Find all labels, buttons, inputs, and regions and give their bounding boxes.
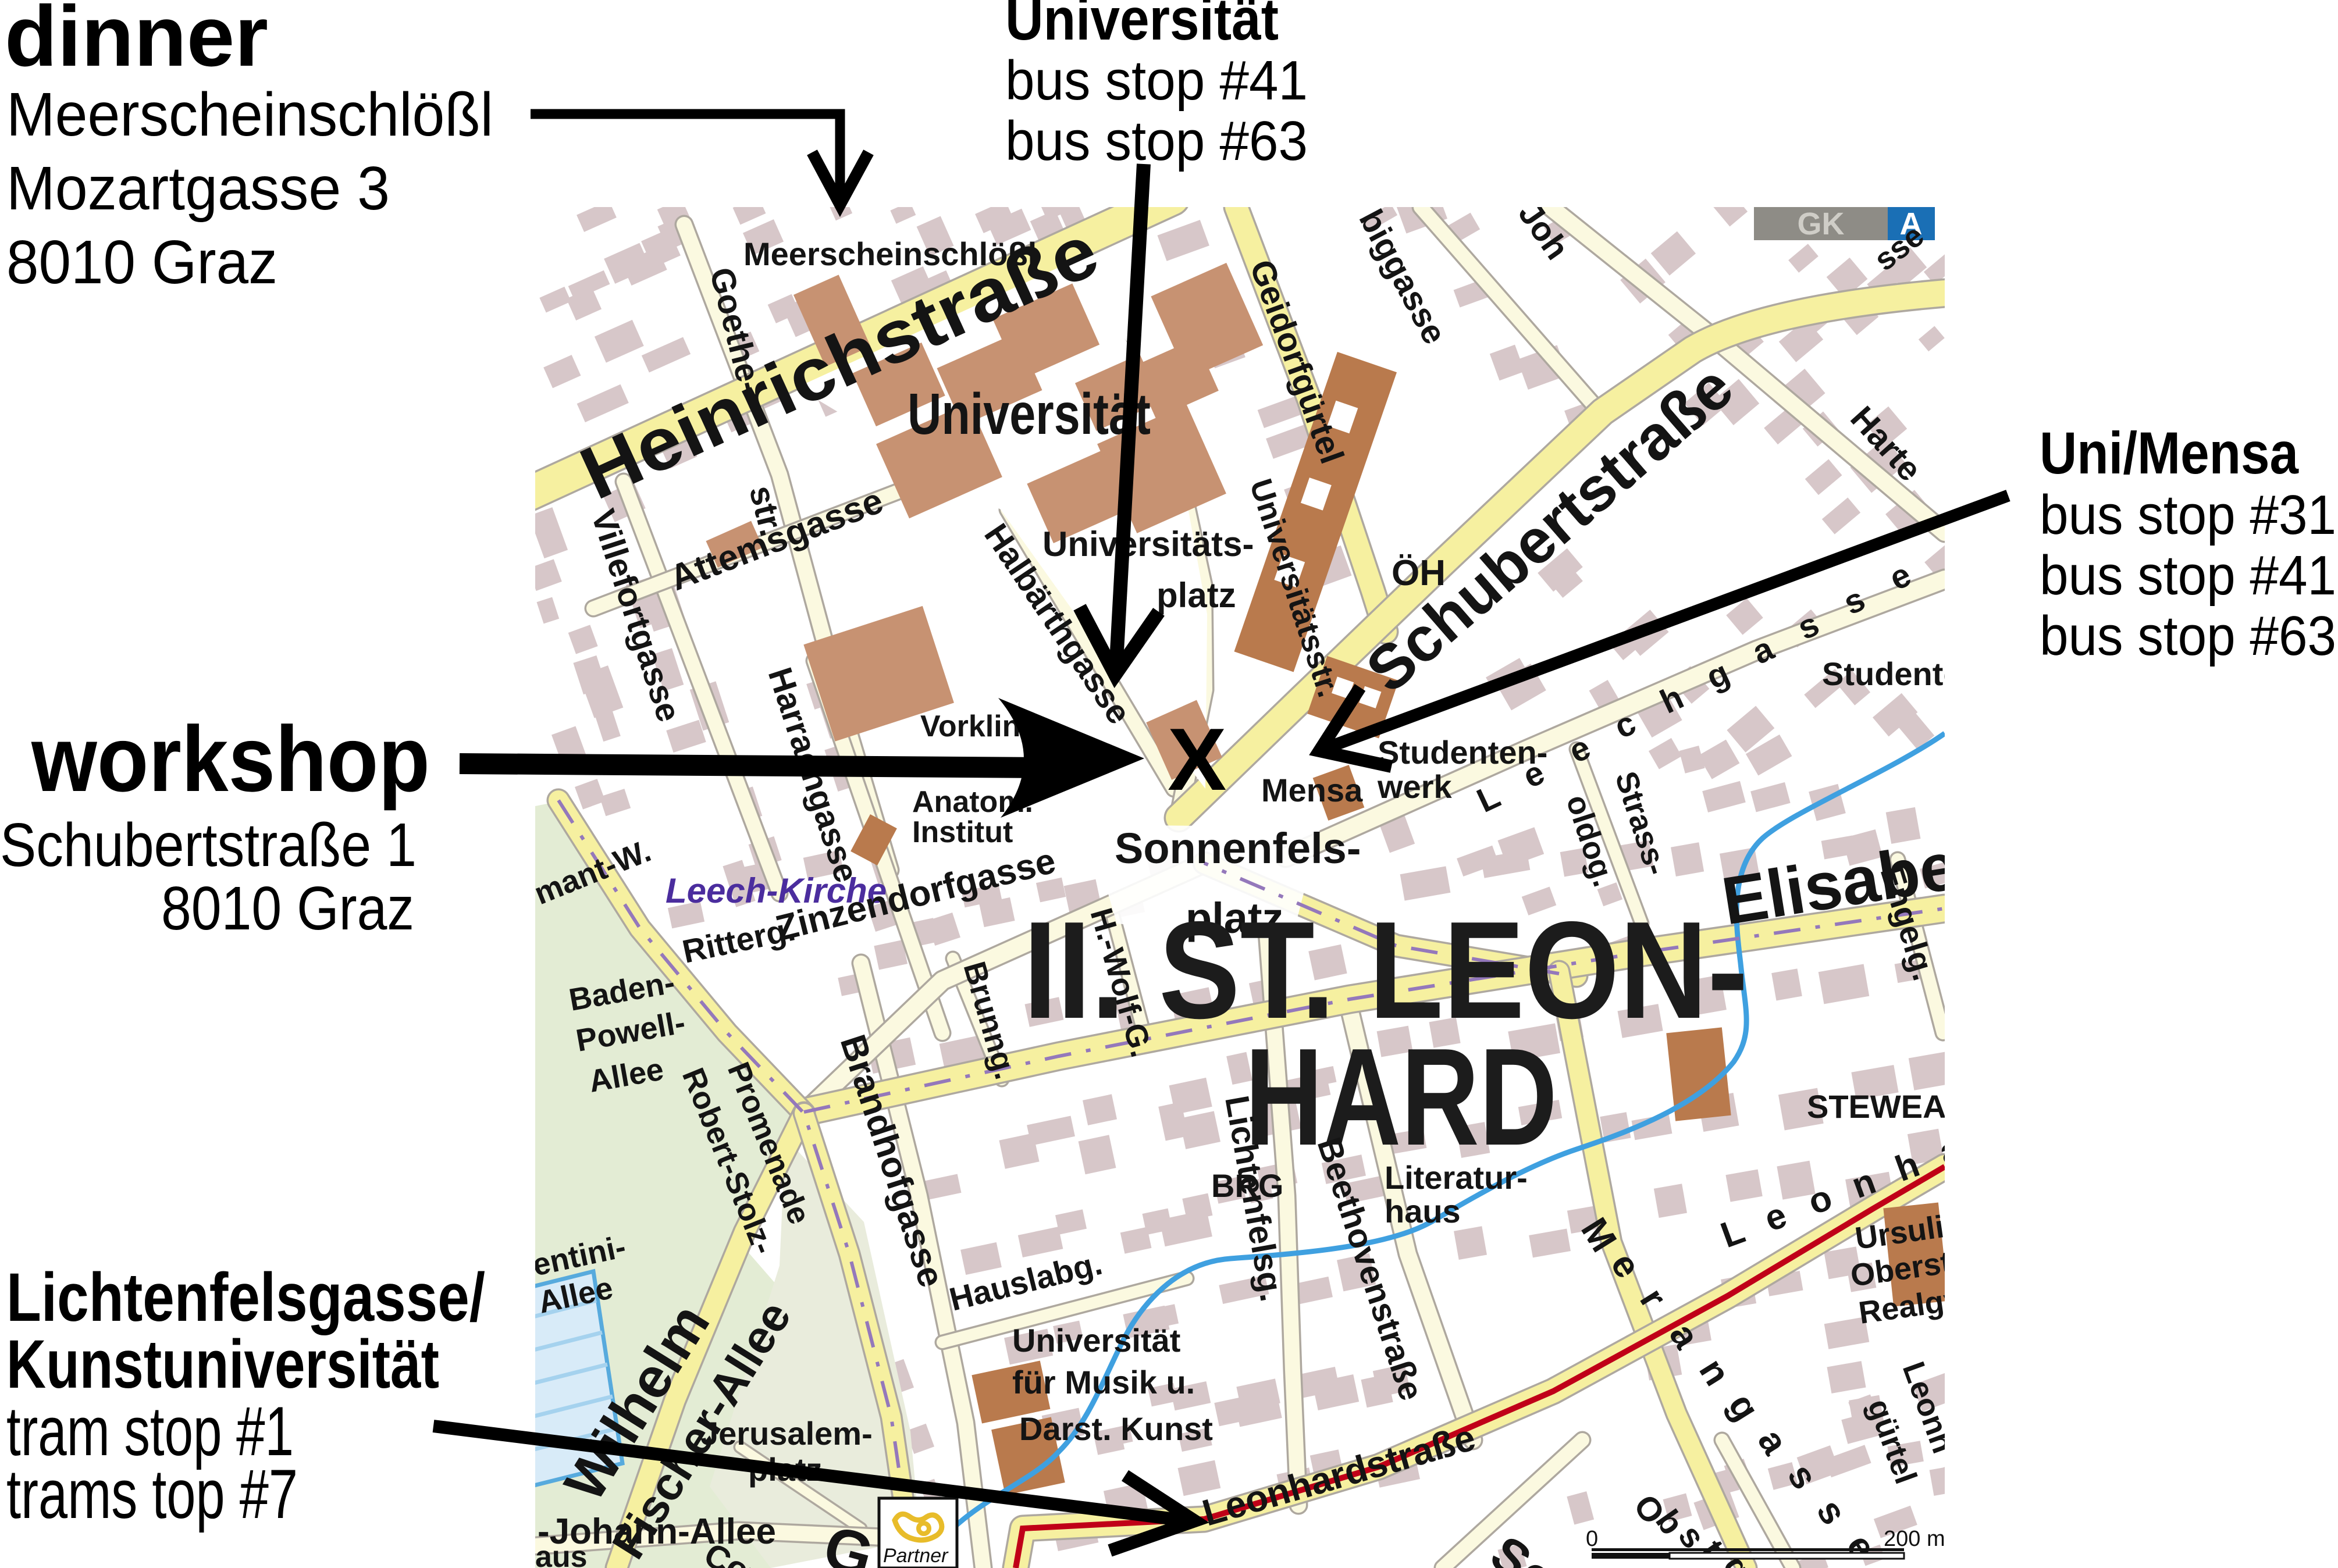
- svg-text:8010 Graz: 8010 Graz: [6, 228, 277, 297]
- svg-text:Mensa: Mensa: [1261, 772, 1363, 808]
- svg-text:Literatur-: Literatur-: [1385, 1159, 1528, 1196]
- svg-text:Sonnenfels-: Sonnenfels-: [1115, 824, 1361, 872]
- svg-text:für Musik u.: für Musik u.: [1012, 1364, 1195, 1400]
- svg-text:bus stop #63: bus stop #63: [1005, 110, 1308, 172]
- svg-text:bus stop #63: bus stop #63: [2040, 605, 2336, 667]
- svg-text:Institut: Institut: [912, 815, 1013, 849]
- svg-text:Universitäts-: Universitäts-: [1042, 525, 1254, 564]
- svg-text:Darst. Kunst: Darst. Kunst: [1019, 1410, 1213, 1447]
- svg-text:trams top #7: trams top #7: [6, 1455, 298, 1533]
- svg-text:bus stop #31: bus stop #31: [2040, 484, 2336, 546]
- svg-text:Uni/Mensa: Uni/Mensa: [2040, 420, 2299, 486]
- svg-text:GK: GK: [1798, 206, 1845, 241]
- svg-text:haus: haus: [1385, 1193, 1461, 1230]
- svg-text:bus stop #41: bus stop #41: [2040, 544, 2336, 607]
- svg-text:200 m: 200 m: [1884, 1527, 1945, 1551]
- svg-text:8010 Graz: 8010 Graz: [161, 874, 414, 943]
- svg-text:Universität: Universität: [908, 382, 1151, 447]
- svg-text:Schubertstraße 1: Schubertstraße 1: [0, 811, 417, 879]
- svg-text:workshop: workshop: [31, 707, 430, 811]
- svg-text:Mozartgasse 3: Mozartgasse 3: [6, 154, 390, 223]
- svg-text:platz: platz: [1156, 576, 1236, 615]
- svg-text:Jerusalem-: Jerusalem-: [700, 1415, 873, 1452]
- svg-text:Meerscheinschlößl: Meerscheinschlößl: [6, 80, 493, 149]
- svg-text:X: X: [1168, 710, 1226, 809]
- svg-text:Partner: Partner: [883, 1545, 949, 1567]
- svg-text:bus stop #41: bus stop #41: [1005, 49, 1308, 112]
- svg-text:Lichtenfelsgasse/: Lichtenfelsgasse/: [6, 1259, 485, 1336]
- svg-text:Meerscheinschlößl: Meerscheinschlößl: [743, 236, 1037, 272]
- svg-text:0: 0: [1586, 1527, 1598, 1551]
- svg-text:aus: aus: [535, 1540, 588, 1568]
- svg-text:Universität: Universität: [1012, 1322, 1180, 1359]
- svg-text:werk: werk: [1377, 768, 1452, 805]
- svg-text:Universität: Universität: [1005, 0, 1279, 52]
- svg-text:Kunstuniversität: Kunstuniversität: [6, 1326, 439, 1403]
- svg-text:HARD: HARD: [1245, 1020, 1557, 1174]
- svg-text:dinner: dinner: [5, 0, 268, 84]
